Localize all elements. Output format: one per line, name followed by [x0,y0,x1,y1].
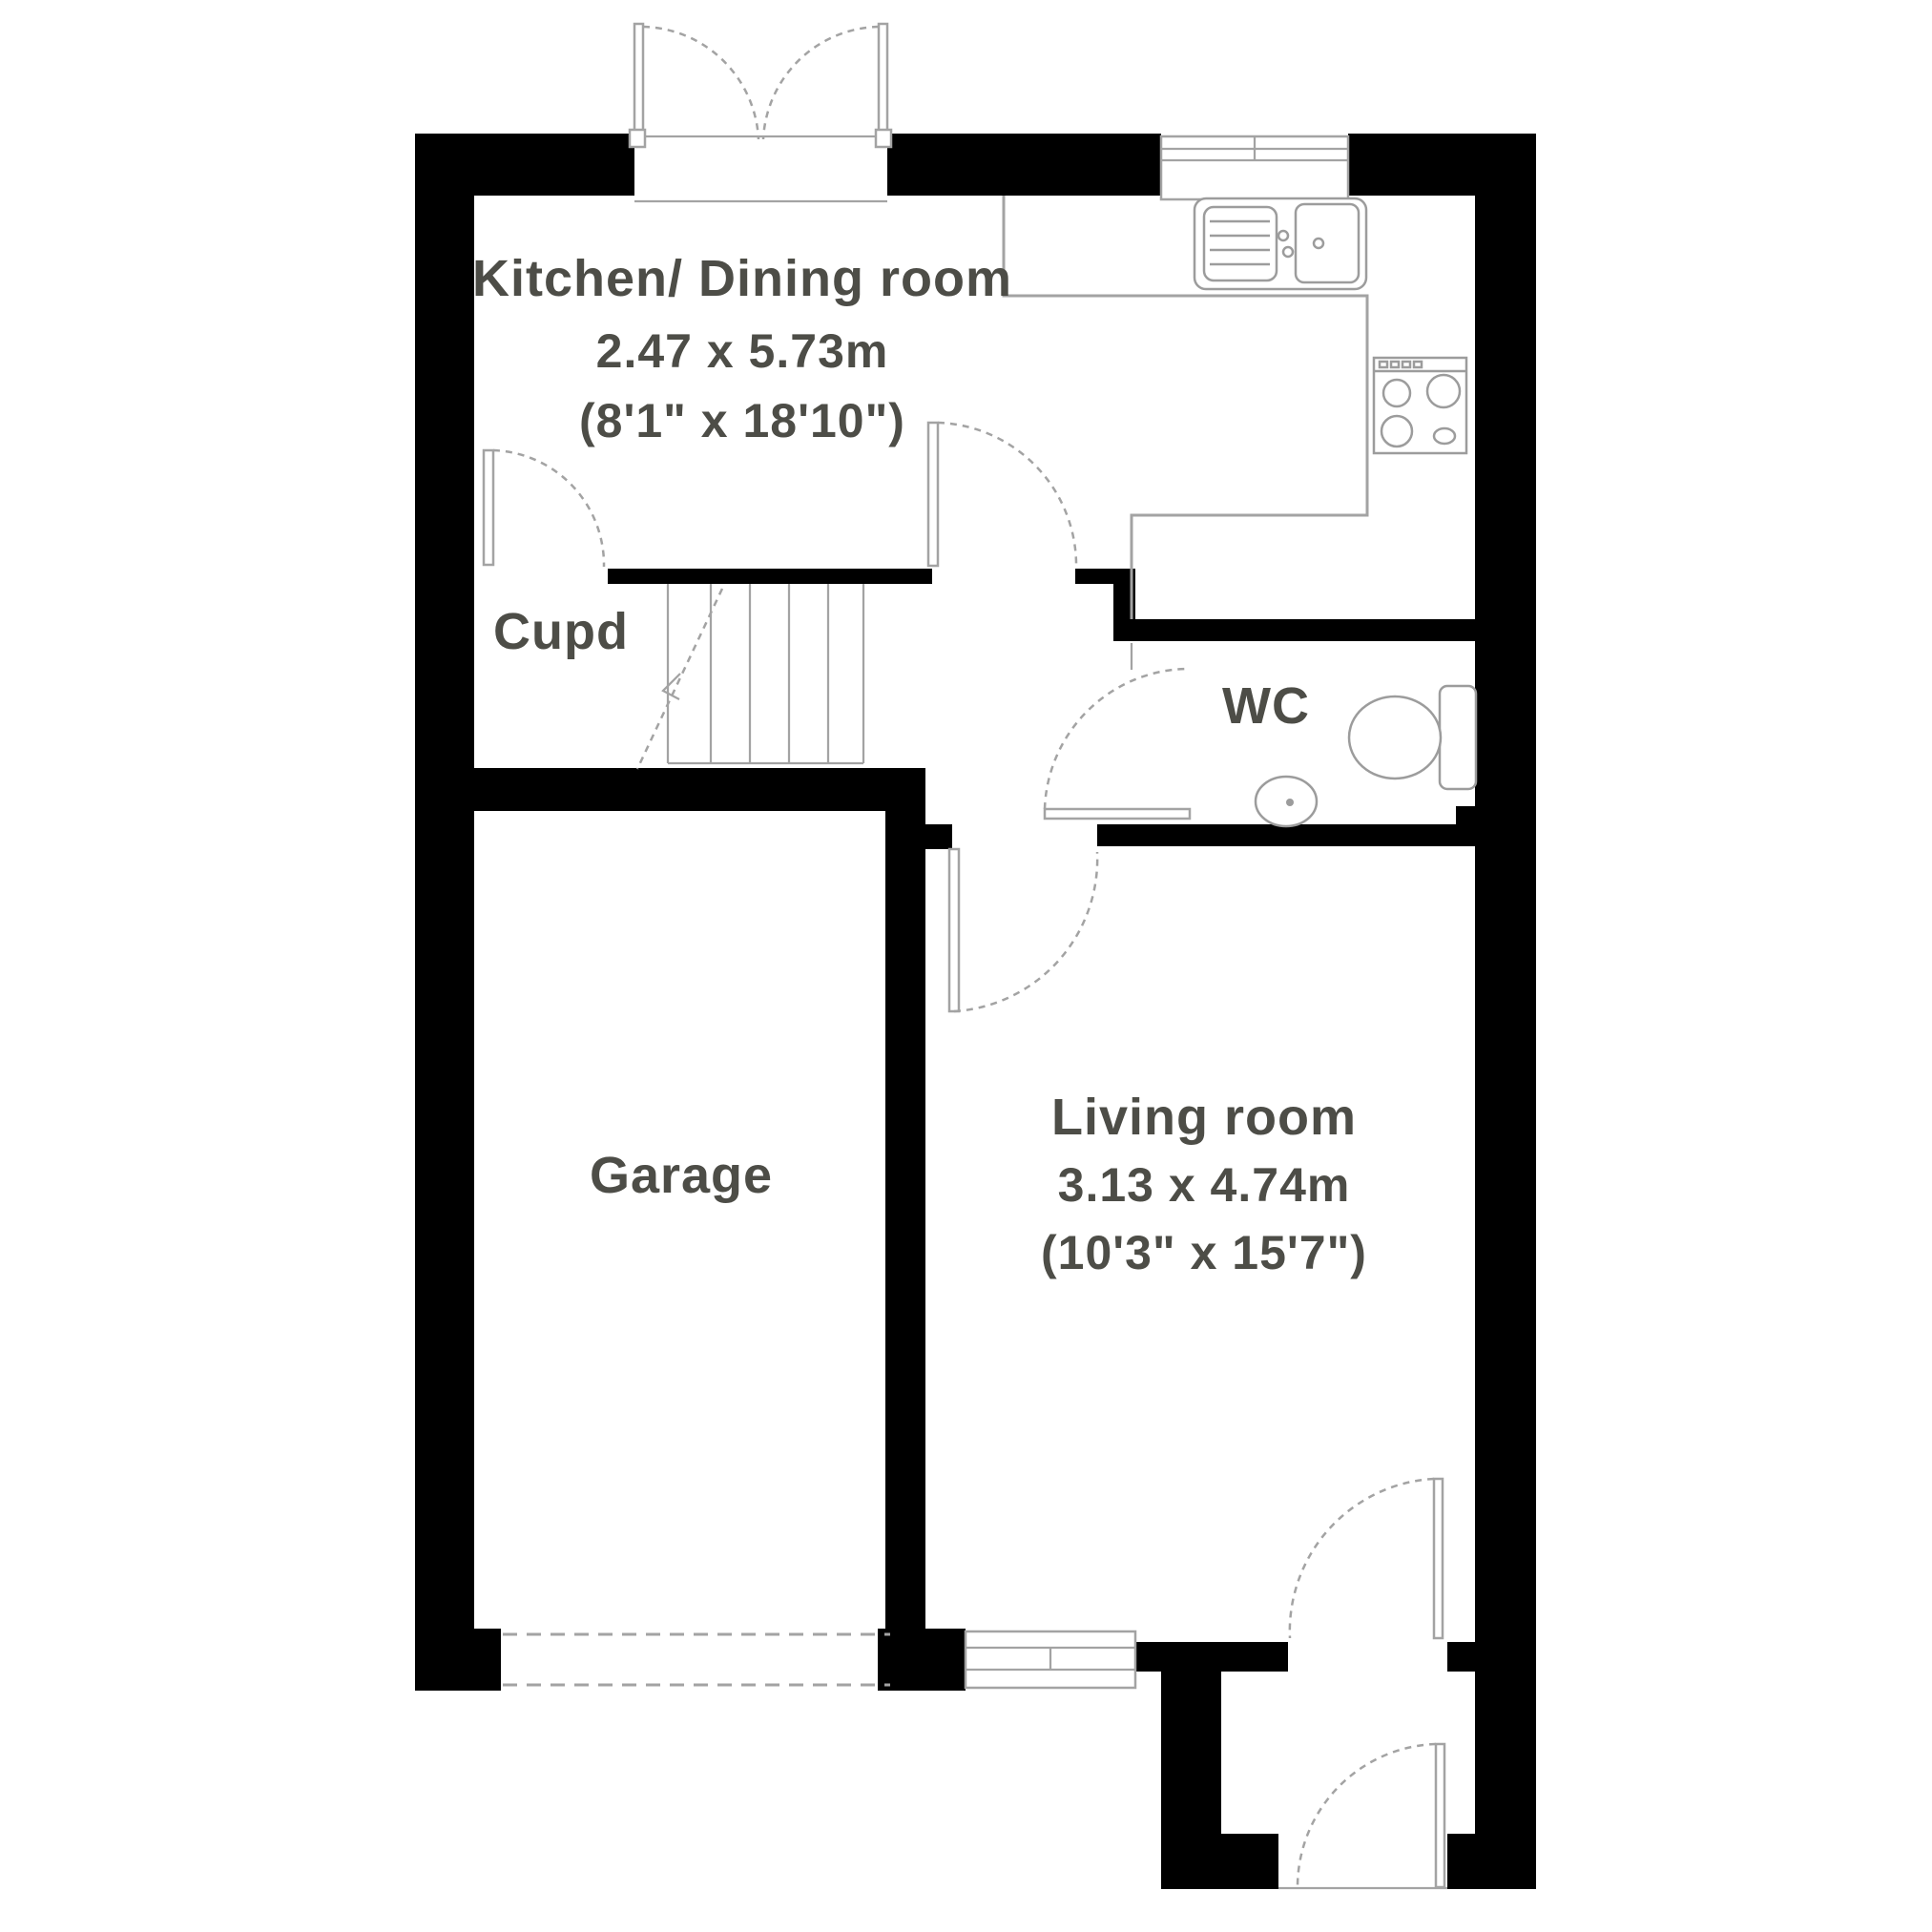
wall-left [415,134,474,1691]
basin-icon [1256,777,1317,826]
wall-kitchen-wc [1113,619,1475,641]
living-size-metric: 3.13 x 4.74m [1058,1158,1351,1212]
kitchen-size-metric: 2.47 x 5.73m [596,324,889,378]
kitchen-window-icon [1161,136,1348,199]
living-label: Living room [1051,1089,1357,1146]
floor-plan-svg: Kitchen/ Dining room 2.47 x 5.73m (8'1" … [0,0,1932,1932]
wall-kitchen-hall-a [608,569,932,584]
wc-label: WC [1222,677,1310,735]
living-window-icon [966,1631,1135,1688]
floor-plan-page: Kitchen/ Dining room 2.47 x 5.73m (8'1" … [0,0,1932,1932]
wall-hall-garage [474,768,925,811]
kitchen-size-imperial: (8'1" x 18'10") [579,394,905,447]
wall-top-left [415,134,634,196]
living-size-imperial: (10'3" x 15'7") [1041,1226,1367,1279]
wall-garage-bottom-right [878,1629,966,1691]
wall-wc-bottom [1097,824,1475,846]
wall-right [1475,134,1536,1889]
wall-porch-right-foot [1447,1834,1534,1889]
garage-label: Garage [590,1147,773,1204]
wall-top-mid [887,134,1161,196]
wall-hall-living-nub [925,824,952,849]
cupboard-label: Cupd [493,603,629,660]
wall-garage-bottom-left [415,1629,501,1691]
wall-porch-left-foot [1161,1834,1278,1889]
wall-garage-living [885,768,925,1629]
wall-living-porch-nub [1447,1642,1475,1672]
wall-living-porch [1135,1642,1288,1672]
kitchen-label: Kitchen/ Dining room [472,250,1012,307]
sink-icon [1195,198,1366,289]
